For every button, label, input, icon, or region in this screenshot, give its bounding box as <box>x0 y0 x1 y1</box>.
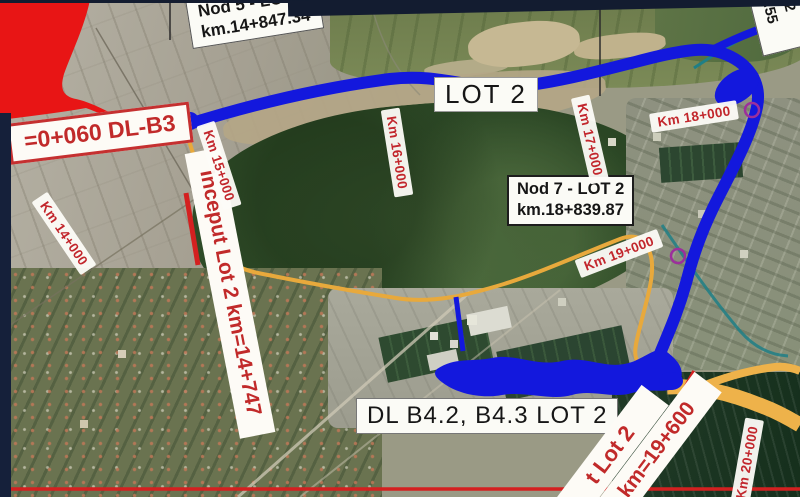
satellite-map: Nod 5 - LOT 2 km.14+847.34 LOT 2 Nod 7 -… <box>0 0 800 497</box>
route-dl-b4-connector <box>456 297 463 351</box>
label-nod7-line2: km.18+839.87 <box>517 200 624 221</box>
label-lot2: LOT 2 <box>434 77 538 112</box>
orange-road-branch <box>700 367 800 387</box>
label-nod7: Nod 7 - LOT 2 km.18+839.87 <box>507 175 634 226</box>
label-nod7-line1: Nod 7 - LOT 2 <box>517 179 624 200</box>
frame-left-bar <box>0 113 11 497</box>
label-dl-b4: DL B4.2, B4.3 LOT 2 <box>356 398 618 434</box>
junction-blob <box>659 372 683 390</box>
